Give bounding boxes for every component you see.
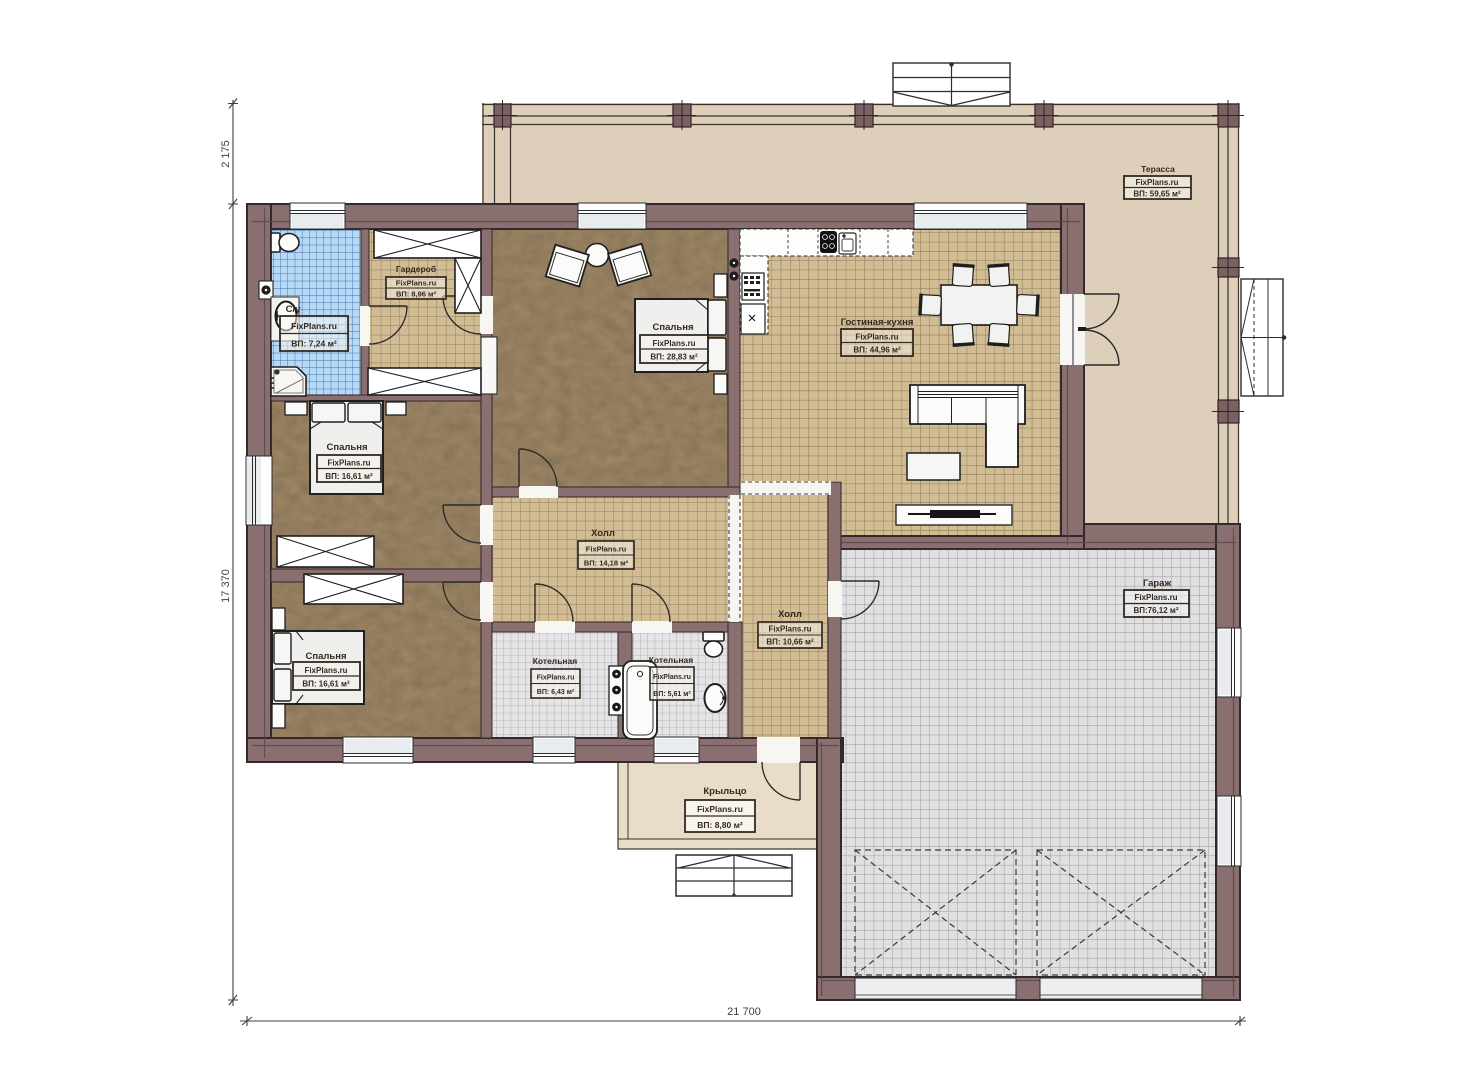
- svg-text:FixPlans.ru: FixPlans.ru: [586, 545, 627, 554]
- svg-text:ВП: 59,65 м²: ВП: 59,65 м²: [1133, 190, 1181, 199]
- svg-text:Гардероб: Гардероб: [396, 264, 436, 274]
- svg-text:2 175: 2 175: [220, 140, 232, 168]
- svg-text:17 370: 17 370: [220, 569, 232, 603]
- svg-text:ВП: 44,96 м²: ВП: 44,96 м²: [853, 346, 901, 355]
- svg-text:ВП: 14,18 м²: ВП: 14,18 м²: [584, 559, 629, 568]
- svg-text:Котельная: Котельная: [649, 655, 694, 665]
- svg-text:Терасса: Терасса: [1141, 164, 1175, 174]
- svg-text:FixPlans.ru: FixPlans.ru: [291, 321, 337, 331]
- svg-text:Крыльцо: Крыльцо: [703, 786, 746, 797]
- svg-text:FixPlans.ru: FixPlans.ru: [1135, 178, 1178, 187]
- svg-text:ВП: 16,61 м²: ВП: 16,61 м²: [325, 472, 373, 481]
- svg-text:ВП: 5,61 м²: ВП: 5,61 м²: [653, 691, 691, 698]
- svg-text:FixPlans.ru: FixPlans.ru: [855, 333, 898, 342]
- svg-text:ВП:76,12 м²: ВП:76,12 м²: [1133, 606, 1178, 615]
- svg-text:FixPlans.ru: FixPlans.ru: [1134, 593, 1177, 602]
- svg-text:Гараж: Гараж: [1143, 578, 1172, 589]
- svg-text:21 700: 21 700: [727, 1006, 761, 1018]
- svg-text:FixPlans.ru: FixPlans.ru: [537, 675, 575, 682]
- svg-text:FixPlans.ru: FixPlans.ru: [652, 339, 695, 348]
- svg-text:FixPlans.ru: FixPlans.ru: [396, 279, 437, 288]
- svg-text:Спальня: Спальня: [652, 322, 693, 333]
- svg-text:FixPlans.ru: FixPlans.ru: [304, 666, 347, 675]
- svg-text:ВП: 7,24 м²: ВП: 7,24 м²: [291, 339, 337, 349]
- svg-text:FixPlans.ru: FixPlans.ru: [327, 459, 370, 468]
- svg-text:ВП: 10,66 м²: ВП: 10,66 м²: [766, 638, 814, 647]
- svg-text:Котельная: Котельная: [533, 656, 578, 666]
- svg-text:ВП: 8,96 м²: ВП: 8,96 м²: [396, 290, 437, 299]
- svg-text:Холл: Холл: [591, 528, 615, 539]
- svg-text:ВП: 16,61 м²: ВП: 16,61 м²: [302, 680, 350, 689]
- svg-text:ВП: 8,80 м²: ВП: 8,80 м²: [697, 820, 743, 830]
- svg-text:Холл: Холл: [778, 609, 802, 620]
- svg-text:С/у: С/у: [286, 304, 302, 315]
- svg-text:FixPlans.ru: FixPlans.ru: [697, 804, 743, 814]
- svg-text:ВП: 28,83 м²: ВП: 28,83 м²: [650, 353, 698, 362]
- svg-text:FixPlans.ru: FixPlans.ru: [768, 625, 811, 634]
- svg-text:Спальня: Спальня: [305, 651, 346, 662]
- svg-text:Гостиная-кухня: Гостиная-кухня: [841, 317, 914, 328]
- svg-text:ВП: 6,43 м²: ВП: 6,43 м²: [537, 689, 575, 696]
- svg-text:FixPlans.ru: FixPlans.ru: [653, 674, 691, 681]
- svg-text:Спальня: Спальня: [326, 442, 367, 453]
